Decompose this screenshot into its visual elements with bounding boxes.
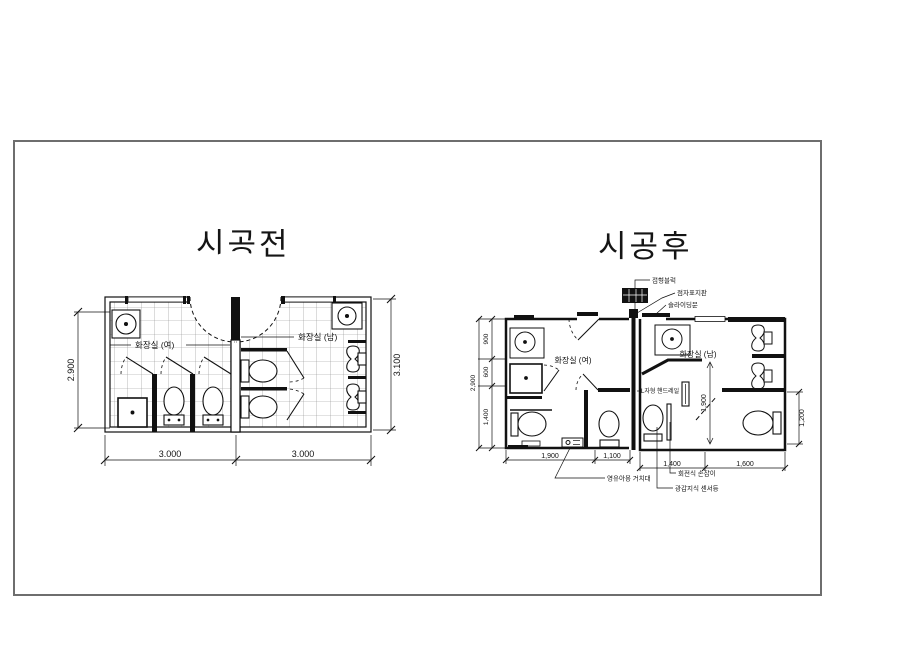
room-label-men: 화장실 (남) (298, 332, 337, 342)
after-bottom-annotation-labels: 영유아용 거치대 회전식 손잡이 광감지식 센서등 (607, 469, 719, 493)
annotation-label: 회전식 손잡이 (678, 469, 716, 478)
l-handrail-label-group: L자형 핸드레일 (637, 387, 679, 395)
after-plan: 점형블럭 점자표지판 슬라이딩문 (470, 272, 815, 507)
dim-label: 1,900 (701, 394, 708, 412)
dim-label: 1,400 (663, 461, 681, 468)
after-title: 시공후 (598, 221, 693, 266)
dim-label: 1,600 (736, 461, 754, 468)
dim-label: 1,400 (483, 408, 490, 425)
dim-label: 1,100 (603, 453, 621, 460)
dim-label: 2,900 (470, 374, 477, 391)
after-left-dimensions (476, 316, 506, 451)
sink-icon (332, 303, 362, 329)
accessible-toilet-icon (508, 412, 546, 448)
tactile-block-icon (622, 288, 648, 303)
rotating-grab-bar-icon (667, 404, 671, 440)
dim-label: 600 (483, 366, 490, 377)
dim-label: 1,900 (541, 453, 559, 460)
annotation-label: 점형블럭 (652, 277, 676, 285)
after-center-wall (629, 309, 638, 450)
annotation-label: 슬라이딩문 (668, 300, 698, 309)
urinal-partition (348, 340, 366, 343)
dim-label: 2.900 (66, 359, 76, 382)
toilet-icon (241, 396, 277, 418)
annotation-label: 점자표지판 (677, 288, 707, 297)
sliding-door-panel (642, 313, 670, 317)
toilet-icon (643, 405, 663, 441)
stall-door (576, 374, 598, 390)
urinal-icon (752, 325, 772, 351)
room-label-men: 화장실 (남) (680, 349, 717, 359)
stall-wall (722, 388, 785, 392)
toilet-icon (164, 387, 184, 425)
privacy-screen (642, 360, 702, 374)
stall-partition (241, 348, 287, 352)
urinal-icon (752, 363, 772, 389)
window-men (284, 297, 334, 302)
entry-door (569, 319, 599, 340)
utility-door (544, 365, 559, 391)
after-women-room (506, 312, 630, 448)
toilet-icon (241, 360, 277, 382)
urinal-partition (348, 376, 366, 379)
dim-label: 3.000 (292, 449, 315, 459)
room-label-women: 화장실 (여) (555, 355, 592, 365)
mop-basin-icon (118, 398, 147, 427)
stall-partition (152, 374, 157, 432)
dim-label: 3.000 (159, 449, 182, 459)
after-men-room (640, 313, 785, 450)
stall-partition (584, 390, 588, 448)
urinal-partition (348, 411, 366, 414)
accessible-toilet-icon (743, 411, 781, 435)
annotation-label: 영유아용 거치대 (607, 474, 651, 483)
annotation-label: 광감지식 센서등 (675, 484, 719, 493)
stall-partition (241, 387, 287, 391)
stall-wall (598, 388, 630, 392)
after-top-annotation-labels: 점형블럭 점자표지판 슬라이딩문 (652, 277, 707, 310)
entry-center-wall (231, 297, 240, 340)
before-plan: 화장실 (여) 화장실 (남) 3.000 3.000 2.900 3.100 (60, 280, 410, 480)
partition-wall (506, 396, 542, 399)
infant-holder-icon (562, 438, 583, 447)
urinal-partition (752, 354, 785, 358)
annotation-label: L자형 핸드레일 (641, 387, 679, 395)
dim-label: 900 (483, 333, 490, 344)
dim-label: 1,200 (799, 409, 806, 427)
drawing-page: 시공전 시공후 (0, 0, 921, 651)
dim-label: 3.100 (392, 354, 402, 377)
after-left-dimension-labels: 900 600 1,400 2,900 (470, 333, 490, 425)
sink-icon (112, 310, 140, 338)
window-women (128, 297, 184, 302)
stall-partition (190, 374, 195, 432)
toilet-icon (203, 387, 223, 425)
room-label-women: 화장실 (여) (135, 340, 174, 350)
window-men (695, 317, 725, 322)
sink-icon (510, 328, 544, 358)
mop-basin-icon (510, 364, 542, 393)
toilet-icon (599, 411, 619, 447)
l-handrail-icon (682, 382, 689, 406)
